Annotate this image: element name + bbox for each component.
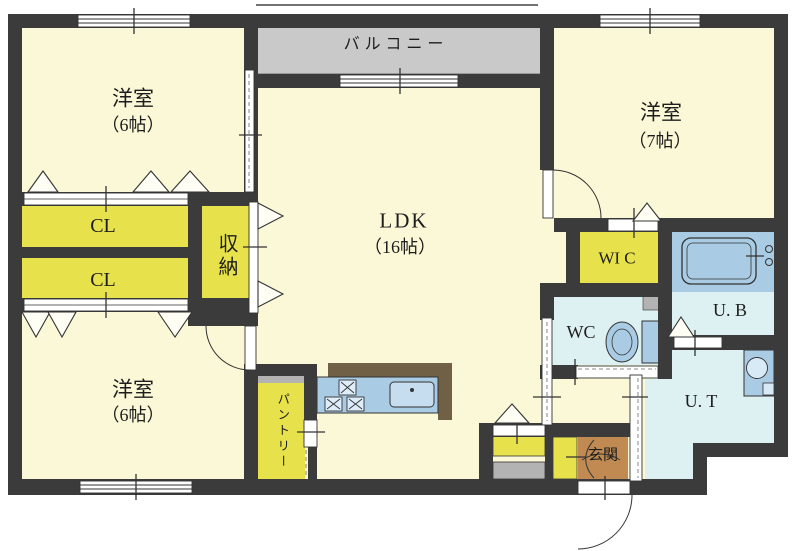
hall-closet-step <box>493 462 545 479</box>
entrance-door-arc <box>578 495 632 549</box>
kitchen-counter <box>317 363 452 420</box>
exterior-notch <box>707 457 788 495</box>
label-wc: WC <box>567 323 596 341</box>
toilet-icon <box>606 321 659 363</box>
label-utility: U. T <box>685 392 718 410</box>
floor-plan: バルコニー 洋室 （6帖） 洋室 （7帖） LDK （16帖） CL CL 収納… <box>0 0 800 551</box>
label-closet-upper: CL <box>90 216 116 236</box>
label-pantry: パントリー <box>276 392 289 470</box>
entrance-door-leaf <box>578 481 630 494</box>
label-bedroom-bottom-left-size: （6帖） <box>102 406 165 424</box>
label-bedroom-top-right: 洋室 <box>640 103 682 124</box>
label-unit-bath: U. B <box>713 301 747 319</box>
kitchen-sink-icon <box>390 382 434 407</box>
bedroom-bl-door-leaf <box>245 326 256 370</box>
shoe-cabinet <box>553 437 577 479</box>
label-bedroom-bottom-left: 洋室 <box>112 380 154 401</box>
washbasin-icon <box>744 350 774 396</box>
label-storage: 収納 <box>216 233 236 279</box>
label-bedroom-top-left-size: （6帖） <box>102 116 165 134</box>
label-bedroom-top-left: 洋室 <box>112 89 154 110</box>
label-closet-lower: CL <box>90 270 116 290</box>
pantry-shelf <box>258 376 305 383</box>
label-walk-in-closet: WI C <box>598 250 635 267</box>
label-ldk-size: （16帖） <box>364 238 436 256</box>
label-bedroom-top-right-size: （7帖） <box>629 132 692 150</box>
floor-plan-drawing <box>0 0 800 551</box>
label-balcony: バルコニー <box>344 37 449 53</box>
bedroom-tr-door-leaf <box>543 170 553 218</box>
label-entrance: 玄関 <box>588 449 618 464</box>
label-ldk: LDK <box>379 211 428 232</box>
